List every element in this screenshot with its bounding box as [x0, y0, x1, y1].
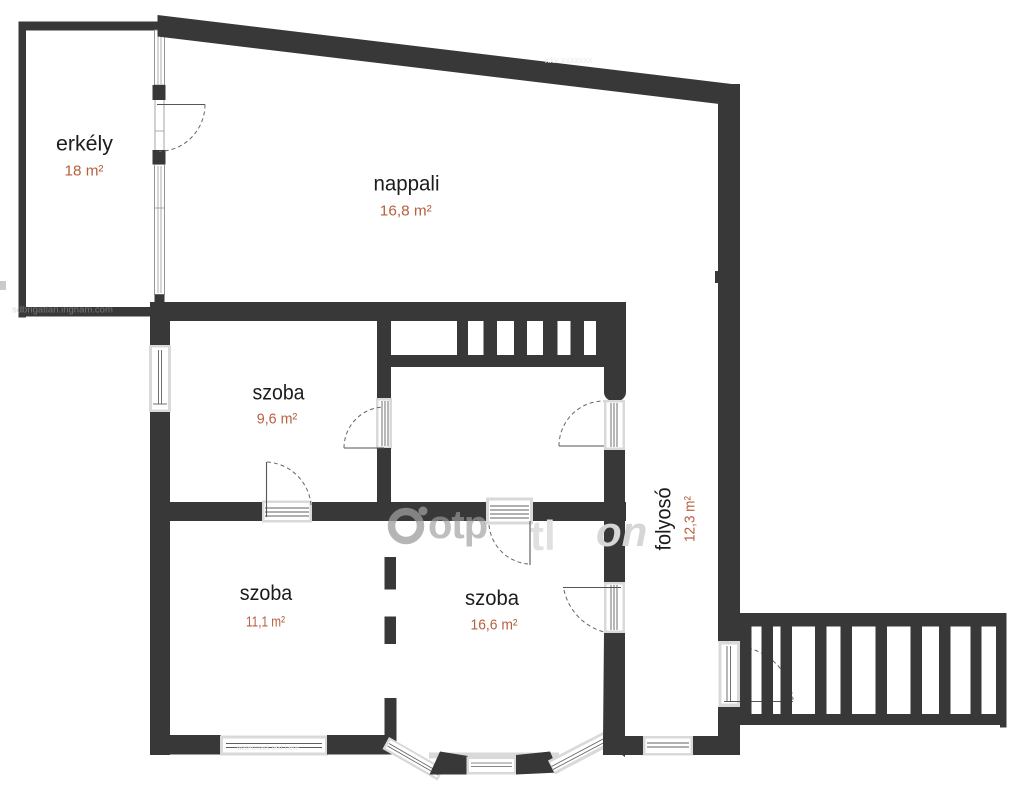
svg-text:16,6 m²: 16,6 m² — [471, 617, 518, 634]
svg-text:16,8 m²: 16,8 m² — [380, 203, 432, 220]
svg-text:folyosó: folyosó — [652, 487, 676, 550]
svg-text:otp: otp — [428, 503, 487, 547]
svg-text:on: on — [596, 508, 647, 555]
svg-text:szoba: szoba — [253, 381, 305, 405]
svg-text:12,3 m²: 12,3 m² — [682, 496, 699, 542]
svg-text:18 m²: 18 m² — [65, 163, 104, 180]
svg-text:watermark text here: watermark text here — [236, 745, 299, 752]
svg-text:erkély: erkély — [56, 132, 113, 156]
svg-text:szoba: szoba — [465, 586, 519, 610]
svg-text:xxx xxxxxxx: xxx xxxxxxx — [545, 55, 593, 65]
svg-text:nappali: nappali — [374, 172, 440, 196]
svg-text:tl: tl — [530, 512, 556, 559]
svg-text:sdbngatlan.ingham.com: sdbngatlan.ingham.com — [12, 305, 113, 316]
svg-text:9,6 m²: 9,6 m² — [257, 411, 298, 428]
svg-text:szoba: szoba — [240, 581, 293, 605]
svg-text:11,1 m²: 11,1 m² — [246, 614, 285, 631]
